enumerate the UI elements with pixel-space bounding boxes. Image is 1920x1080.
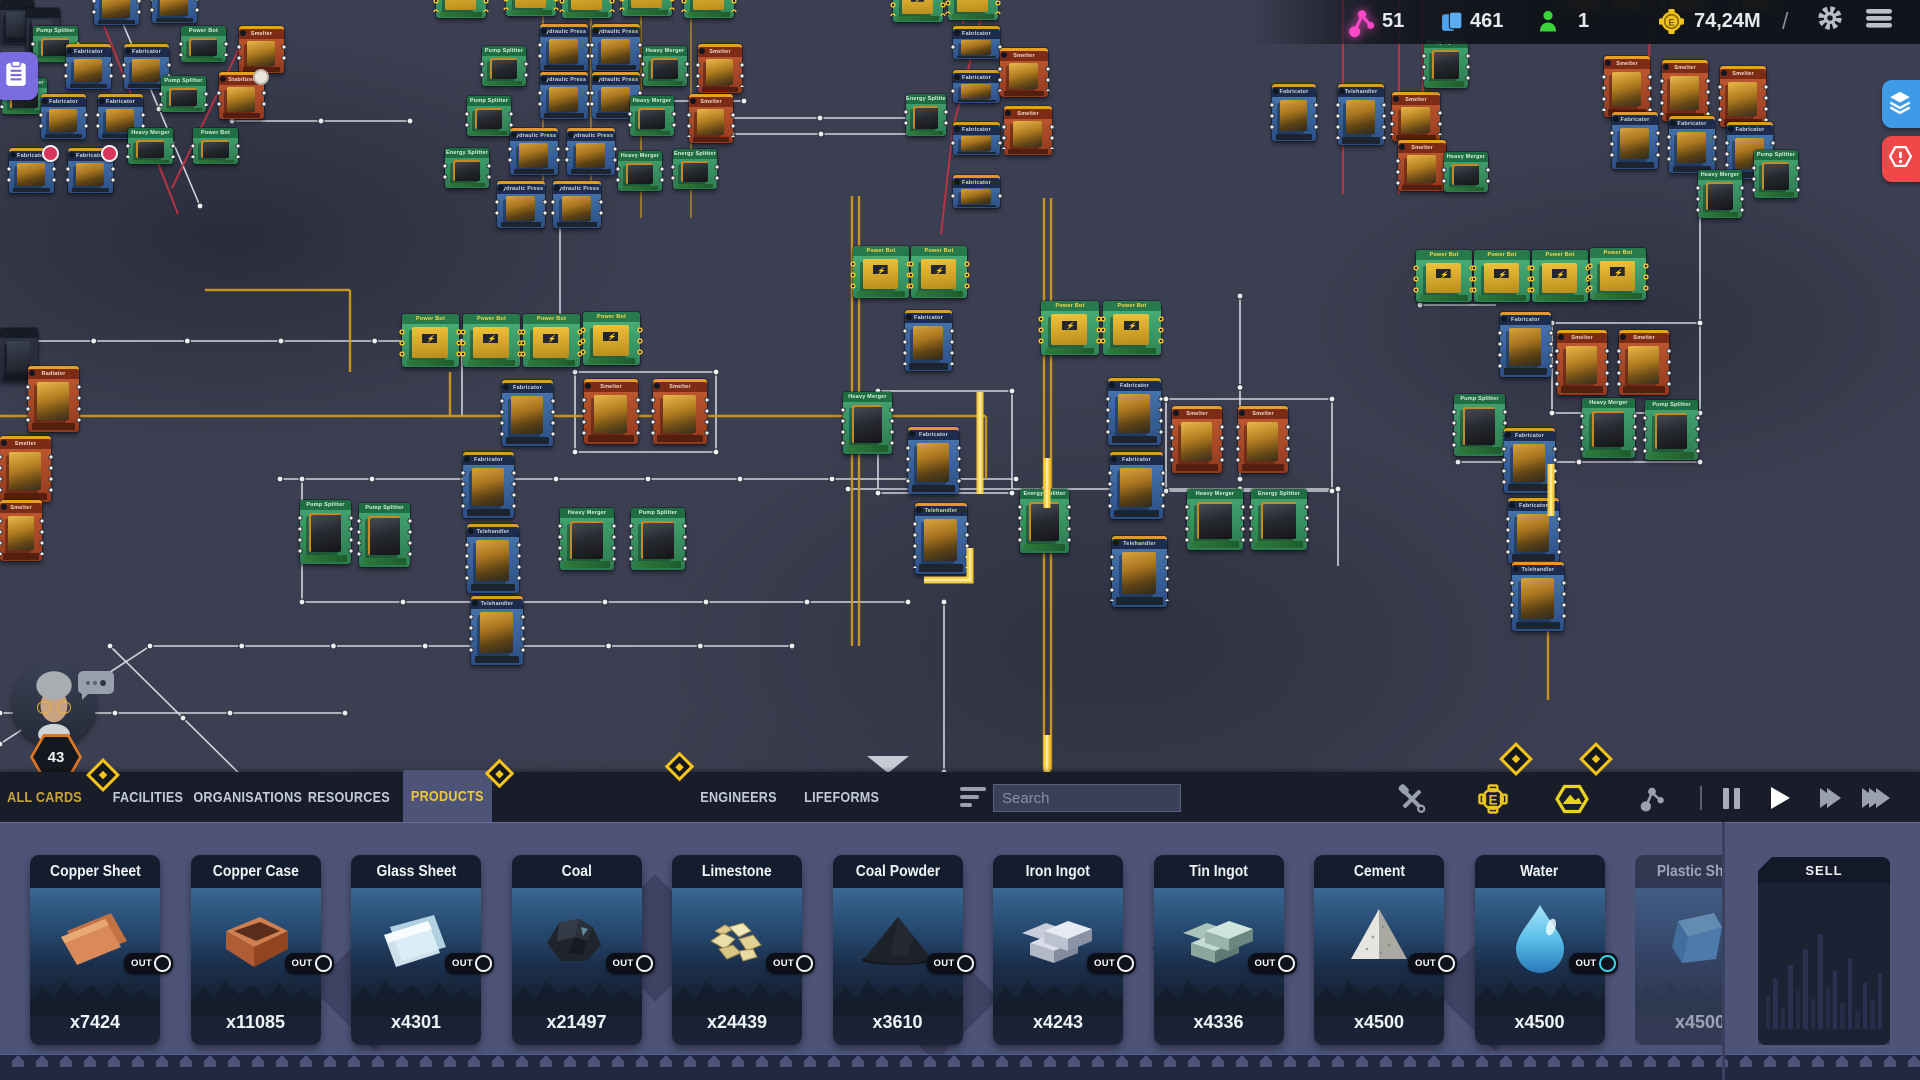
- board-card[interactable]: Power Bot⚡: [506, 0, 556, 16]
- board-card-title: Fabricator: [1504, 431, 1555, 441]
- board-card[interactable]: Smelter: [1398, 140, 1446, 191]
- board-card[interactable]: Power Bot: [181, 26, 226, 62]
- board-card[interactable]: Fabricator: [953, 175, 1000, 208]
- board-card[interactable]: Power Bot⚡: [523, 314, 580, 367]
- product-count: x21497: [512, 1012, 642, 1033]
- board-card-title: Hydraulic Press: [510, 131, 558, 141]
- board-card[interactable]: Fabricator: [41, 94, 86, 139]
- product-count: x4336: [1154, 1012, 1284, 1033]
- board-card[interactable]: Smelter: [698, 44, 742, 93]
- board-card[interactable]: Pump Splitter: [300, 500, 351, 564]
- board-card-title: Telehandler: [471, 599, 523, 609]
- product-card-glass-sheet[interactable]: Glass SheetOUTx4301: [351, 855, 481, 1045]
- board-card-title: Hydraulic Press: [567, 131, 615, 141]
- product-name: Plastic Sheet: [1635, 855, 1722, 888]
- out-port[interactable]: OUT: [927, 953, 976, 974]
- board-card[interactable]: Fabricator: [94, 0, 139, 25]
- tray-divider: [1722, 822, 1725, 1080]
- board-card[interactable]: Fabricator: [66, 44, 111, 89]
- tab-label: ENGINEERS: [701, 789, 777, 806]
- engineers-count: 1: [1578, 0, 1589, 42]
- board-card-title: Smelter: [1238, 409, 1288, 419]
- board-card[interactable]: Power Bot⚡: [1416, 250, 1472, 302]
- board-card-title: Heavy Merger: [630, 96, 674, 106]
- notes-button[interactable]: [0, 52, 38, 100]
- product-name: Coal: [512, 855, 642, 888]
- board-card[interactable]: Power Bot: [193, 128, 238, 164]
- board-card-title: Telehandler: [467, 527, 519, 537]
- hexagon-gem-icon: [1555, 801, 1589, 818]
- board-card-title: Power Bot: [463, 314, 520, 324]
- tab-engineers[interactable]: ENGINEERS: [699, 772, 779, 822]
- board-card-title: Pump Splitter: [467, 96, 511, 106]
- board-card-title: Smelter: [0, 439, 51, 449]
- hamburger-icon: [1864, 6, 1894, 36]
- board-card[interactable]: Fabricator: [1504, 428, 1555, 493]
- plastic-sheet-icon: [1658, 897, 1722, 981]
- menu-button[interactable]: [1864, 0, 1894, 42]
- tab-facilities[interactable]: FACILITIES: [112, 772, 184, 822]
- board-card[interactable]: Power Bot⚡: [1590, 248, 1646, 300]
- board-card[interactable]: Smelter: [0, 500, 42, 561]
- board-card-title: Fabricator: [953, 29, 1000, 39]
- board-card[interactable]: Fabricator: [463, 452, 514, 518]
- energy-coin-button[interactable]: E: [1477, 783, 1509, 820]
- board-card-title: Telehandler: [915, 506, 967, 516]
- board-card[interactable]: Heavy Merger: [560, 508, 614, 570]
- out-port[interactable]: OUT: [766, 953, 815, 974]
- node-graph-icon: [1636, 802, 1668, 819]
- board-card-title: Smelter: [1619, 333, 1669, 343]
- sell-panel[interactable]: SELL: [1758, 857, 1890, 1045]
- product-card-cement[interactable]: CementOUTx4500: [1314, 855, 1444, 1045]
- board-card[interactable]: Hydraulic Press: [540, 72, 588, 119]
- board-card-title: Pump Splitter: [631, 508, 685, 518]
- board-card[interactable]: Power Bot⚡: [463, 314, 520, 367]
- board-card-title: Power Bot: [1532, 250, 1588, 260]
- engineer-icon: [1538, 0, 1558, 42]
- board-card[interactable]: Heavy Merger: [1582, 398, 1635, 458]
- board-card[interactable]: Pump Splitter: [161, 76, 206, 112]
- board-card-title: Smelter: [1172, 409, 1222, 419]
- board-card[interactable]: Smelter: [1000, 48, 1048, 97]
- product-card-copper-sheet[interactable]: Copper SheetOUTx7424: [30, 855, 160, 1045]
- board-card-title: Smelter: [1392, 95, 1440, 105]
- board-card[interactable]: Power Bot⚡: [436, 0, 486, 18]
- board-card[interactable]: Power Bot⚡: [583, 312, 640, 365]
- out-port[interactable]: OUT: [124, 953, 173, 974]
- out-port[interactable]: OUT: [285, 953, 334, 974]
- board-card-title: Power Bot: [1103, 301, 1161, 311]
- board-card-title: Fabricator: [908, 430, 959, 440]
- board-card[interactable]: Fabricator: [1272, 84, 1316, 141]
- product-count: x24439: [672, 1012, 802, 1033]
- board-card-title: Heavy Merger: [843, 392, 892, 402]
- board-card[interactable]: Fabricator: [1108, 378, 1161, 445]
- fastest-forward-button[interactable]: [1862, 788, 1883, 813]
- board-card[interactable]: Energy Splitter: [1251, 489, 1307, 550]
- board-card[interactable]: Radiator: [28, 366, 79, 432]
- tab-label: LIFEFORMS: [804, 789, 879, 806]
- board-card[interactable]: Hydraulic Press: [592, 24, 640, 71]
- out-port[interactable]: OUT: [606, 953, 655, 974]
- board-card-title: Power Bot: [1474, 250, 1530, 260]
- board-card-title: Energy Splitter: [445, 148, 489, 158]
- board-card[interactable]: Pump Splitter: [631, 508, 685, 570]
- tab-label: RESOURCES: [308, 789, 390, 806]
- board-card[interactable]: Fabricator: [953, 122, 1000, 155]
- board-card[interactable]: Smelter: [1604, 56, 1650, 117]
- gear-icon: [1816, 4, 1844, 38]
- board-card-title: Power Bot: [193, 128, 238, 138]
- out-port[interactable]: OUT: [1087, 953, 1136, 974]
- out-port[interactable]: OUT: [1248, 953, 1297, 974]
- board-card[interactable]: Heavy Merger: [843, 392, 892, 454]
- out-port[interactable]: OUT: [1408, 953, 1457, 974]
- cards-stack-icon: [1440, 0, 1465, 42]
- board-card-title: Power Bot: [911, 246, 967, 256]
- board-card[interactable]: Fabricator: [1612, 112, 1658, 169]
- board-card-title: Pump Splitter: [1645, 400, 1698, 410]
- product-count: x4500: [1475, 1012, 1605, 1033]
- board-card-title: Hydraulic Press: [497, 184, 545, 194]
- board-card-title: Hydraulic Press: [540, 75, 588, 85]
- tab-label: PRODUCTS: [411, 788, 484, 805]
- board-card-title: Pump Splitter: [33, 26, 78, 36]
- board-card[interactable]: Smelter: [1619, 330, 1669, 395]
- board-card[interactable]: Fabricator: [1110, 452, 1163, 519]
- energy-coin-icon: E: [1477, 802, 1509, 819]
- board-card-title: Power Bot: [583, 312, 640, 322]
- board-card-title: Pump Splitter: [161, 76, 206, 86]
- board-card-title: Heavy Merger: [128, 128, 173, 138]
- board-card[interactable]: Smelter: [689, 94, 733, 143]
- svg-text:E: E: [1668, 17, 1674, 27]
- board-card-title: Telehandler: [1112, 539, 1167, 549]
- out-port[interactable]: OUT: [1569, 953, 1618, 974]
- speech-bubble[interactable]: [78, 671, 114, 694]
- tab-label: ORGANISATIONS: [194, 789, 303, 806]
- product-name: Limestone: [672, 855, 802, 888]
- product-card-limestone[interactable]: LimestoneOUTx24439: [672, 855, 802, 1045]
- board-card[interactable]: Smelter: [1238, 406, 1288, 473]
- board-card[interactable]: Smelter: [1662, 60, 1708, 121]
- product-name: Cement: [1314, 855, 1444, 888]
- playback-divider: [1700, 786, 1702, 810]
- board-card-title: Power Bot: [181, 26, 226, 36]
- tab-lifeforms[interactable]: LIFEFORMS: [802, 772, 882, 822]
- board-card-title: Hydraulic Press: [592, 27, 640, 37]
- board-card-title: Power Bot: [1590, 248, 1646, 258]
- board-card-title: Fabricator: [953, 178, 1000, 188]
- alert-button[interactable]: [1882, 136, 1920, 182]
- board-card[interactable]: Fabricator: [68, 148, 113, 193]
- board-card[interactable]: Power Bot⚡: [1041, 301, 1099, 355]
- board-card[interactable]: Heavy Merger: [1698, 170, 1742, 218]
- board-card-title: Power Bot: [402, 314, 459, 324]
- board-card[interactable]: Pump Splitter: [1754, 150, 1798, 198]
- tab-organisations[interactable]: ORGANISATIONS: [197, 772, 299, 822]
- board-card[interactable]: Heavy Merger: [128, 128, 173, 164]
- board-card[interactable]: Hydraulic Press: [553, 181, 601, 228]
- board-card-title: Pump Splitter: [482, 46, 526, 56]
- board-card[interactable]: Telehandler: [1112, 536, 1167, 607]
- warning-hexagon-icon: [1888, 144, 1913, 174]
- fast-forward-button[interactable]: [1820, 788, 1834, 813]
- board-card[interactable]: Telehandler: [1512, 562, 1564, 631]
- board-card-title: Pump Splitter: [300, 500, 351, 510]
- product-count: x11085: [191, 1012, 321, 1033]
- connections-button[interactable]: [1636, 783, 1668, 820]
- board-card-title: Smelter: [1604, 59, 1650, 69]
- board-card-title: Heavy Merger: [1698, 170, 1742, 180]
- board-card[interactable]: Power Bot⚡: [562, 0, 612, 18]
- tab-label: FACILITIES: [113, 789, 183, 806]
- product-name: Copper Case: [191, 855, 321, 888]
- board-card[interactable]: Hydraulic Press: [497, 181, 545, 228]
- resources-hex-button[interactable]: [1555, 784, 1589, 819]
- board-card-title: Radiator: [28, 369, 79, 379]
- connections-count: 51: [1382, 0, 1404, 42]
- product-card-water[interactable]: WaterOUTx4500: [1475, 855, 1605, 1045]
- board-card-title: Pump Splitter: [1754, 150, 1798, 160]
- board-card[interactable]: Hydraulic Press: [540, 24, 588, 71]
- board-card[interactable]: Fabricator: [152, 0, 197, 23]
- board-card[interactable]: Pump Splitter: [359, 503, 410, 567]
- product-card-coal[interactable]: CoalOUTx21497: [512, 855, 642, 1045]
- glasses-icon: [34, 701, 74, 713]
- tab-all-cards[interactable]: ALL CARDS: [8, 772, 82, 822]
- tab-label: ALL CARDS: [8, 789, 83, 806]
- board-card-title: Fabricator: [953, 125, 1000, 135]
- board-card-title: Power Bot: [1041, 301, 1099, 311]
- board-card[interactable]: Smelter: [1720, 66, 1766, 127]
- board-card[interactable]: Telehandler: [467, 524, 519, 593]
- board-card-title: Heavy Merger: [618, 151, 662, 161]
- board-card[interactable]: Power Bot⚡: [1474, 250, 1530, 302]
- board-card-title: Fabricator: [953, 73, 1000, 83]
- product-count: x7424: [30, 1012, 160, 1033]
- board-card[interactable]: Telehandler: [915, 503, 967, 574]
- product-card-plastic-sheet[interactable]: Plastic SheetOUTx4500: [1635, 855, 1722, 1045]
- board-card[interactable]: Fabricator: [953, 70, 1000, 103]
- player-level: 43: [48, 749, 65, 766]
- board-card-title: Hydraulic Press: [553, 184, 601, 194]
- board-card[interactable]: Pump Splitter: [1424, 38, 1468, 88]
- board-card[interactable]: Energy Splitter: [906, 94, 946, 136]
- board-card[interactable]: Pump Splitter: [1454, 394, 1505, 456]
- board-card-title: Telehandler: [1512, 565, 1564, 575]
- product-name: Tin Ingot: [1154, 855, 1284, 888]
- board-card-title: Fabricator: [1727, 125, 1773, 135]
- product-name: Iron Ingot: [993, 855, 1123, 888]
- product-name: Copper Sheet: [30, 855, 160, 888]
- board-card-title: Heavy Merger: [1444, 152, 1488, 162]
- hammer-wrench-icon: [1396, 801, 1428, 818]
- layers-icon: [1887, 89, 1913, 120]
- board-card-title: Energy Splitter: [906, 94, 946, 104]
- product-count: x4500: [1635, 1012, 1722, 1033]
- board-card[interactable]: Heavy Merger: [1444, 152, 1488, 192]
- board-card[interactable]: Power Bot⚡: [853, 246, 909, 298]
- clipboard-icon: [4, 60, 28, 93]
- product-card-iron-ingot[interactable]: Iron IngotOUTx4243: [993, 855, 1123, 1045]
- board-card[interactable]: Smelter: [1004, 106, 1052, 155]
- gear-badge: [253, 69, 269, 85]
- board-card[interactable]: Power Bot⚡: [911, 246, 967, 298]
- board-card[interactable]: Smelter: [1172, 406, 1222, 473]
- board-card[interactable]: Power Bot⚡: [1103, 301, 1161, 355]
- board-card[interactable]: Smelter: [239, 26, 284, 73]
- board-card-title: Heavy Merger: [1582, 398, 1635, 408]
- product-card-clipped: Plastic SheetOUTx4500: [1635, 855, 1722, 1045]
- play-button[interactable]: [1771, 787, 1790, 809]
- product-count: x4243: [993, 1012, 1123, 1033]
- board-card-title: Hydraulic Press: [592, 75, 640, 85]
- sell-label: SELL: [1758, 857, 1890, 883]
- board-card[interactable]: Fabricator: [908, 427, 959, 494]
- product-name: Glass Sheet: [351, 855, 481, 888]
- board-card-title: Smelter: [1720, 69, 1766, 79]
- board-card[interactable]: Telehandler: [471, 596, 523, 665]
- board-card-title: Energy Splitter: [1251, 489, 1307, 499]
- board-card-title: Fabricator: [1669, 119, 1715, 129]
- product-name: Coal Powder: [833, 855, 963, 888]
- board-card[interactable]: Pump Splitter: [467, 96, 511, 136]
- board-card-title: Smelter: [653, 382, 707, 392]
- board-card-title: Fabricator: [502, 383, 553, 393]
- svg-text:E: E: [1488, 792, 1497, 807]
- game-screen: FabricatorFabricatorPump SplitterFabrica…: [0, 0, 1920, 1080]
- board-card[interactable]: Telehandler: [1338, 84, 1384, 145]
- board-card-title: Smelter: [1662, 63, 1708, 73]
- board-card[interactable]: Power Bot⚡: [1532, 250, 1588, 302]
- board-card[interactable]: Fabricator: [1508, 498, 1559, 563]
- product-card-coal-powder[interactable]: Coal PowderOUTx3610: [833, 855, 963, 1045]
- product-name: Water: [1475, 855, 1605, 888]
- collapse-tray-arrow[interactable]: [867, 756, 909, 773]
- board-card[interactable]: Stabilizer: [219, 72, 264, 119]
- product-count: x3610: [833, 1012, 963, 1033]
- board-card[interactable]: Power Bot⚡: [893, 0, 943, 22]
- board-card-title: Smelter: [1557, 333, 1607, 343]
- board-card-title: [0, 328, 38, 338]
- board-card-title: Telehandler: [1338, 87, 1384, 97]
- product-card-copper-case[interactable]: Copper CaseOUTx11085: [191, 855, 321, 1045]
- board-card[interactable]: Fabricator: [953, 26, 1000, 59]
- money-icon: E: [1658, 0, 1685, 42]
- board-card[interactable]: Hydraulic Press: [510, 128, 558, 175]
- board-card-title: Smelter: [1004, 109, 1052, 119]
- tab-resources[interactable]: RESOURCES: [308, 772, 390, 822]
- board-card[interactable]: Smelter: [584, 379, 638, 444]
- alert-badge: [42, 145, 59, 162]
- board-card-title: [26, 8, 60, 18]
- board-card-title: Energy Splitter: [1020, 489, 1069, 499]
- board-card-title: Smelter: [584, 382, 638, 392]
- board-card-title: Power Bot: [853, 246, 909, 256]
- board-card-title: Fabricator: [1110, 455, 1163, 465]
- board-card[interactable]: Fabricator: [1669, 116, 1715, 173]
- board-card[interactable]: Heavy Merger: [618, 151, 662, 191]
- board-card-title: Pump Splitter: [359, 503, 410, 513]
- board-card-title: Heavy Merger: [1187, 489, 1243, 499]
- board-card[interactable]: Power Bot⚡: [622, 0, 672, 16]
- board-card-title: Hydraulic Press: [540, 27, 588, 37]
- board-card-title: Power Bot: [523, 314, 580, 324]
- board-card[interactable]: Hydraulic Press: [567, 128, 615, 175]
- sell-chart: [1766, 909, 1882, 1029]
- board-card-title: Fabricator: [905, 313, 952, 323]
- board-card[interactable]: Smelter: [1557, 330, 1607, 395]
- money-amount: 74,24M: [1694, 0, 1761, 42]
- board-card-title: Heavy Merger: [643, 46, 687, 56]
- board-card-title: Smelter: [1000, 51, 1048, 61]
- board-card-title: Power Bot: [1416, 250, 1472, 260]
- product-card-tin-ingot[interactable]: Tin IngotOUTx4336: [1154, 855, 1284, 1045]
- board-card-title: Pump Splitter: [1454, 394, 1505, 404]
- board-card-title: Fabricator: [1108, 381, 1161, 391]
- alert-badge: [101, 145, 118, 162]
- board-card[interactable]: Fabricator: [905, 310, 952, 371]
- board-card-title: Fabricator: [1500, 315, 1551, 325]
- board-card[interactable]: Power Bot⚡: [948, 0, 998, 20]
- board-card[interactable]: Smelter: [0, 436, 51, 502]
- board-card-title: Heavy Merger: [560, 508, 614, 518]
- tools-button[interactable]: [1396, 784, 1428, 819]
- board-card[interactable]: Power Bot⚡: [402, 314, 459, 367]
- board-card[interactable]: Fabricator: [502, 380, 553, 446]
- pink-connection-icon[interactable]: [1346, 6, 1378, 45]
- hud-divider: /: [1782, 0, 1788, 42]
- board-card-title: Fabricator: [1612, 115, 1658, 125]
- settings-button[interactable]: [1816, 0, 1844, 42]
- board-card[interactable]: Energy Splitter: [673, 149, 717, 189]
- pause-button[interactable]: [1723, 788, 1743, 809]
- board-card[interactable]: Heavy Merger: [630, 96, 674, 136]
- board-card[interactable]: Fabricator: [1500, 312, 1551, 377]
- search-input[interactable]: [993, 784, 1181, 812]
- product-count: x4301: [351, 1012, 481, 1033]
- board-card[interactable]: Pump Splitter: [1645, 400, 1698, 460]
- board-card-title: Fabricator: [463, 455, 514, 465]
- board-card[interactable]: Heavy Merger: [1187, 489, 1243, 550]
- tab-products[interactable]: PRODUCTS: [403, 770, 492, 822]
- board-card[interactable]: Smelter: [1392, 92, 1440, 141]
- board-card-title: Fabricator: [1508, 501, 1559, 511]
- layers-button[interactable]: [1882, 80, 1920, 128]
- product-count: x4500: [1314, 1012, 1444, 1033]
- filter-icon[interactable]: [960, 787, 986, 809]
- board-card[interactable]: Fabricator: [9, 148, 54, 193]
- board-card-title: Energy Splitter: [673, 149, 717, 159]
- board-card[interactable]: Heavy Merger: [643, 46, 687, 86]
- cards-count: 461: [1470, 0, 1503, 42]
- board-card[interactable]: Pump Splitter: [482, 46, 526, 86]
- out-port[interactable]: OUT: [445, 953, 494, 974]
- board-card[interactable]: Energy Splitter: [1020, 489, 1069, 553]
- board-card[interactable]: Smelter: [653, 379, 707, 444]
- board-card-title: Smelter: [1398, 143, 1446, 153]
- board-card[interactable]: Power Bot⚡: [684, 0, 734, 18]
- board-card[interactable]: Energy Splitter: [445, 148, 489, 188]
